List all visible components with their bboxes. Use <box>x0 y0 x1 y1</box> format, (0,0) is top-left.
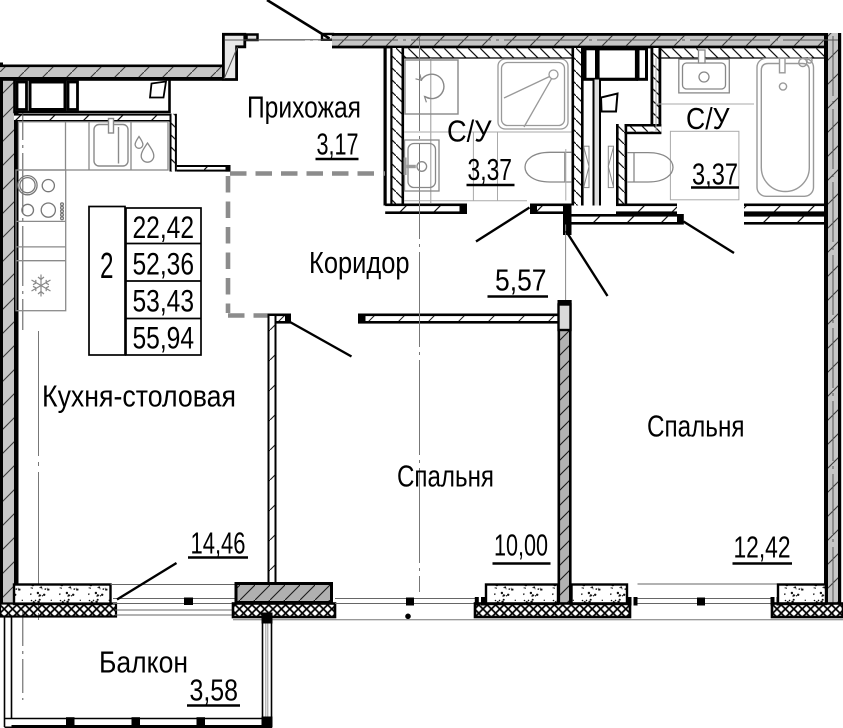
svg-text:3,17: 3,17 <box>317 127 359 162</box>
svg-text:3,37: 3,37 <box>468 152 513 187</box>
svg-text:55,94: 55,94 <box>133 320 195 356</box>
svg-text:С/У: С/У <box>686 102 730 136</box>
svg-text:Спальня: Спальня <box>397 460 494 494</box>
svg-text:Спальня: Спальня <box>647 410 745 444</box>
svg-text:5,57: 5,57 <box>495 263 547 298</box>
svg-text:Балкон: Балкон <box>99 646 188 680</box>
svg-text:53,43: 53,43 <box>133 283 195 319</box>
svg-text:12,42: 12,42 <box>734 530 791 565</box>
svg-text:14,46: 14,46 <box>191 526 246 561</box>
svg-text:52,36: 52,36 <box>133 246 195 282</box>
svg-text:22,42: 22,42 <box>133 209 195 245</box>
svg-text:Прихожая: Прихожая <box>247 91 361 125</box>
svg-text:Коридор: Коридор <box>309 246 410 280</box>
svg-text:10,00: 10,00 <box>494 528 548 563</box>
svg-text:2: 2 <box>100 245 114 286</box>
svg-text:С/У: С/У <box>447 115 492 149</box>
svg-text:3,58: 3,58 <box>190 673 239 708</box>
svg-text:Кухня-столовая: Кухня-столовая <box>42 380 236 414</box>
